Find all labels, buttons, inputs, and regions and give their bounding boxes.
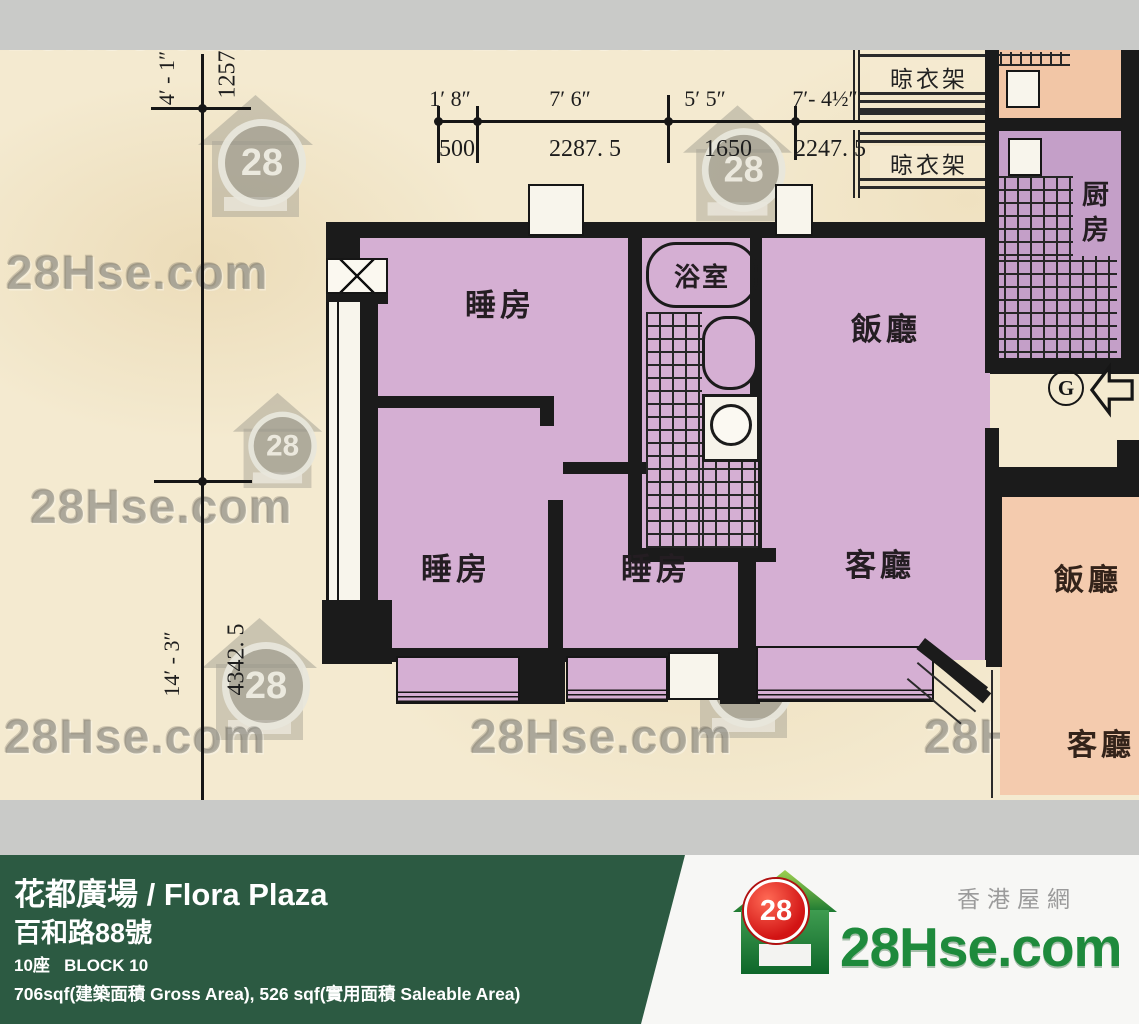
wall bbox=[1121, 50, 1139, 368]
living-label: 客廳 bbox=[832, 540, 928, 585]
bedroom-label: 睡房 bbox=[440, 280, 560, 325]
window-box bbox=[1008, 138, 1042, 176]
neighbor-living-label: 客廳 bbox=[1058, 720, 1139, 764]
dim-dot bbox=[664, 117, 673, 126]
watermark-text: 28Hse.com bbox=[4, 710, 266, 765]
window-box bbox=[1006, 70, 1040, 108]
wall bbox=[988, 118, 1125, 131]
window-box bbox=[528, 184, 584, 236]
wall bbox=[330, 222, 995, 238]
estate-title: 花都廣場 / Flora Plaza bbox=[14, 869, 328, 914]
dim-dot bbox=[473, 117, 482, 126]
dim-feet-label: 7′ 6″ bbox=[525, 86, 615, 112]
window-line bbox=[991, 670, 993, 798]
entrance-g-label: G bbox=[1048, 370, 1084, 406]
wall bbox=[548, 500, 563, 660]
watermark-text: 28Hse.com bbox=[470, 710, 732, 765]
bedroom-label: 睡房 bbox=[396, 544, 516, 589]
bathtub: 浴室 bbox=[646, 242, 758, 308]
dim-mm-label: 1257. 5 bbox=[215, 50, 242, 108]
rack-line bbox=[860, 54, 992, 57]
dim-mm-label: 500 bbox=[431, 136, 483, 163]
bathroom-tile-grid bbox=[646, 312, 702, 548]
watermark-logo-icon: 28 bbox=[198, 95, 313, 230]
wall bbox=[360, 302, 378, 618]
wall bbox=[720, 650, 760, 704]
watermark-text: 28Hse.com bbox=[6, 246, 268, 301]
dim-feet-label: 5′ 5″ bbox=[660, 86, 750, 112]
bay-window bbox=[756, 646, 934, 702]
wall bbox=[378, 396, 554, 408]
dim-feet-label: 4′ - 1″ bbox=[154, 50, 180, 123]
dim-dot bbox=[198, 104, 207, 113]
block-info: 10座 BLOCK 10 bbox=[14, 951, 148, 976]
rack-line bbox=[860, 140, 992, 143]
footer-bar: 花都廣場 / Flora Plaza 百和路88號 10座 BLOCK 10 7… bbox=[0, 855, 1139, 1024]
bathroom-label: 浴室 bbox=[674, 257, 730, 294]
washbasin bbox=[702, 394, 760, 462]
wall bbox=[985, 50, 999, 373]
wall bbox=[517, 650, 565, 704]
brand-tagline: 香港屋網 bbox=[957, 880, 1077, 914]
washbasin-bowl bbox=[710, 404, 752, 446]
dim-feet-label: 1′ 8″ bbox=[405, 86, 495, 112]
neighbor-dining-label: 飯廳 bbox=[1042, 555, 1134, 599]
brand-slot bbox=[759, 944, 811, 966]
kitchen-label: 厨房 bbox=[1074, 180, 1113, 250]
wall bbox=[540, 396, 554, 426]
drying-rack-label: 晾衣架 bbox=[870, 60, 988, 94]
dimension-line-left bbox=[201, 54, 204, 800]
drying-rack-2: 晾衣架 bbox=[853, 130, 992, 198]
bathroom-tile-grid bbox=[702, 462, 758, 548]
wall bbox=[985, 467, 1139, 497]
dim-dot bbox=[434, 117, 443, 126]
window-box bbox=[668, 652, 720, 700]
bay-window bbox=[566, 656, 668, 702]
wall bbox=[628, 238, 642, 548]
window-box bbox=[775, 184, 813, 236]
brand-name: 28Hse.com bbox=[840, 915, 1121, 979]
vent-xbox bbox=[326, 258, 388, 294]
estate-address: 百和路88號 bbox=[14, 911, 152, 950]
dim-dot bbox=[198, 477, 207, 486]
dim-mm-label: 2287. 5 bbox=[535, 136, 635, 163]
bay-window-lines bbox=[398, 691, 518, 702]
drying-rack-label: 晾衣架 bbox=[870, 146, 988, 180]
wall bbox=[986, 497, 1002, 667]
brand-logo-icon: 28 bbox=[733, 870, 837, 976]
bedroom-label: 睡房 bbox=[596, 544, 716, 589]
bay-window bbox=[396, 656, 520, 704]
rack-line bbox=[860, 132, 992, 135]
bay-window-lines bbox=[758, 689, 932, 700]
dimension-line-top bbox=[438, 120, 1000, 123]
rack-line bbox=[860, 186, 992, 189]
left-window-strip bbox=[326, 302, 362, 618]
rack-line bbox=[860, 100, 992, 103]
rack-line bbox=[860, 178, 992, 181]
dim-feet-label: 14′ - 3″ bbox=[159, 619, 185, 709]
dim-mm-label: 4342. 5 bbox=[224, 610, 251, 710]
rack-line bbox=[860, 92, 992, 95]
kitchen-counter-grid bbox=[991, 256, 1117, 366]
watermark-28-badge: 28 bbox=[218, 119, 306, 207]
dining-label: 飯廳 bbox=[838, 304, 934, 349]
rack-line bbox=[860, 108, 992, 115]
watermark-28-badge: 28 bbox=[248, 412, 317, 481]
brand-28-badge: 28 bbox=[744, 879, 808, 943]
watermark-text: 28Hse.com bbox=[470, 50, 732, 61]
watermark-text: 28Hse.com bbox=[30, 480, 292, 535]
dim-dot bbox=[791, 117, 800, 126]
wall bbox=[1117, 440, 1139, 468]
floorplan-paper: 28Hse.com 28Hse.com 28 28 28 28 28 28 28… bbox=[0, 50, 1139, 800]
toilet bbox=[702, 316, 758, 390]
entrance-arrow-icon bbox=[1088, 358, 1136, 422]
screenshot-root: 28Hse.com 28Hse.com 28 28 28 28 28 28 28… bbox=[0, 0, 1139, 1024]
window-line bbox=[337, 302, 339, 618]
hatch-strip bbox=[990, 52, 1070, 66]
drying-rack-1: 晾衣架 bbox=[853, 50, 992, 120]
area-info: 706sqf(建築面積 Gross Area), 526 sqf(實用面積 Sa… bbox=[14, 981, 520, 1006]
kitchen-counter-grid bbox=[991, 176, 1073, 256]
bay-window-lines bbox=[568, 689, 666, 700]
dim-mm-label: 1650 bbox=[678, 136, 778, 163]
